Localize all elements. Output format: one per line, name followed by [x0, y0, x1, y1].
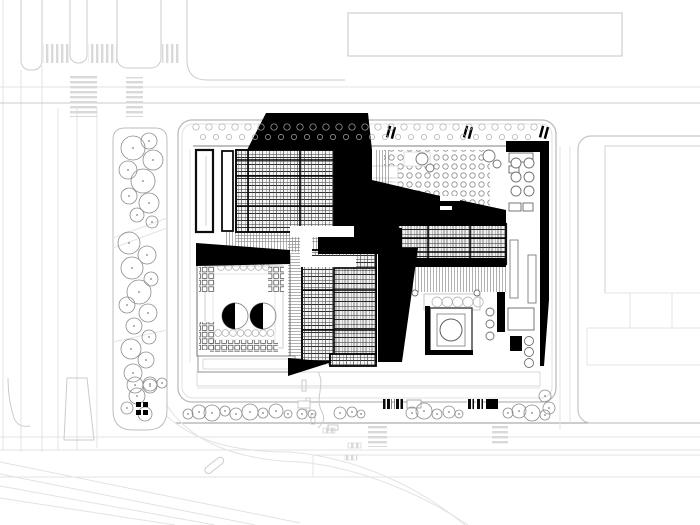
- top-neighbor-building: [348, 13, 622, 56]
- block-corner-north: [187, 0, 345, 80]
- site-plan-drawing: [0, 0, 700, 525]
- pavilion: [430, 308, 472, 352]
- crosswalks: [43, 44, 181, 117]
- southwest-courtyard-building: [197, 255, 295, 372]
- site-plan-canvas: [0, 0, 700, 525]
- tram-tracks: [0, 394, 468, 525]
- northwest-roof: [236, 150, 334, 232]
- left-tree-strip: [113, 128, 167, 430]
- north-black-bar: [247, 113, 372, 150]
- traffic-islands: [21, 0, 345, 80]
- cell-strip-nw: [199, 266, 215, 292]
- cell-strip-south: [210, 340, 278, 352]
- right-neighbor-building: [560, 136, 700, 430]
- small-east-bar: [497, 292, 505, 332]
- right-service-strip: [505, 150, 541, 368]
- south-roof: [302, 250, 376, 366]
- tram-platform: [203, 456, 225, 475]
- cell-strip-ne: [268, 266, 284, 292]
